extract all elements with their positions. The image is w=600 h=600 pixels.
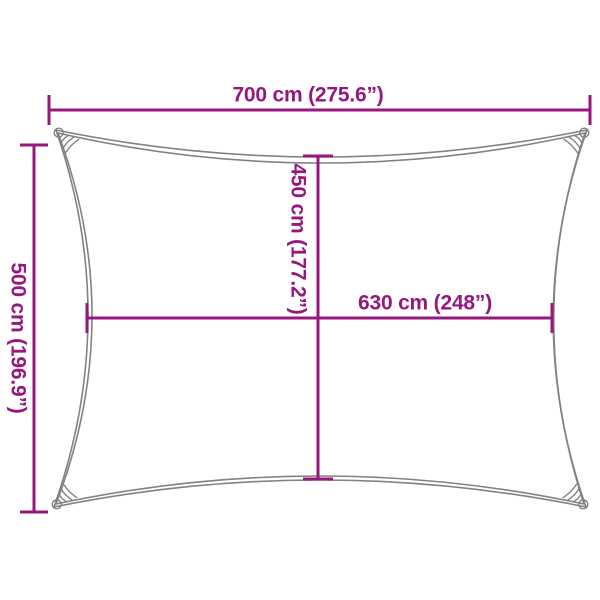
dimension-diagram: 700 cm (275.6”) 500 cm (196.9”) 450 cm (…: [0, 0, 600, 600]
label-top-width: 700 cm (275.6”): [232, 85, 383, 106]
label-left-height: 500 cm (196.9”): [8, 262, 29, 413]
label-inner-height: 450 cm (177.2”): [288, 163, 309, 314]
corner-bottom-right: [563, 484, 594, 515]
label-inner-width: 630 cm (248”): [358, 293, 492, 314]
